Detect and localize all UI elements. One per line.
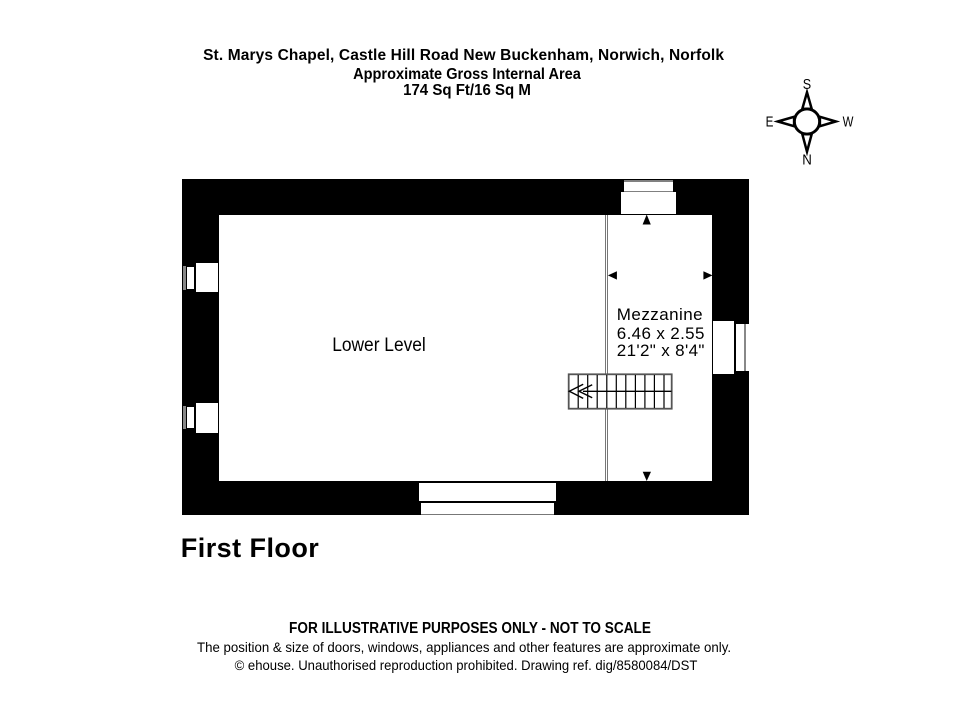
svg-text:E: E <box>766 115 774 131</box>
svg-text:S: S <box>803 77 811 93</box>
svg-text:W: W <box>843 115 854 131</box>
svg-text:N: N <box>802 153 812 169</box>
